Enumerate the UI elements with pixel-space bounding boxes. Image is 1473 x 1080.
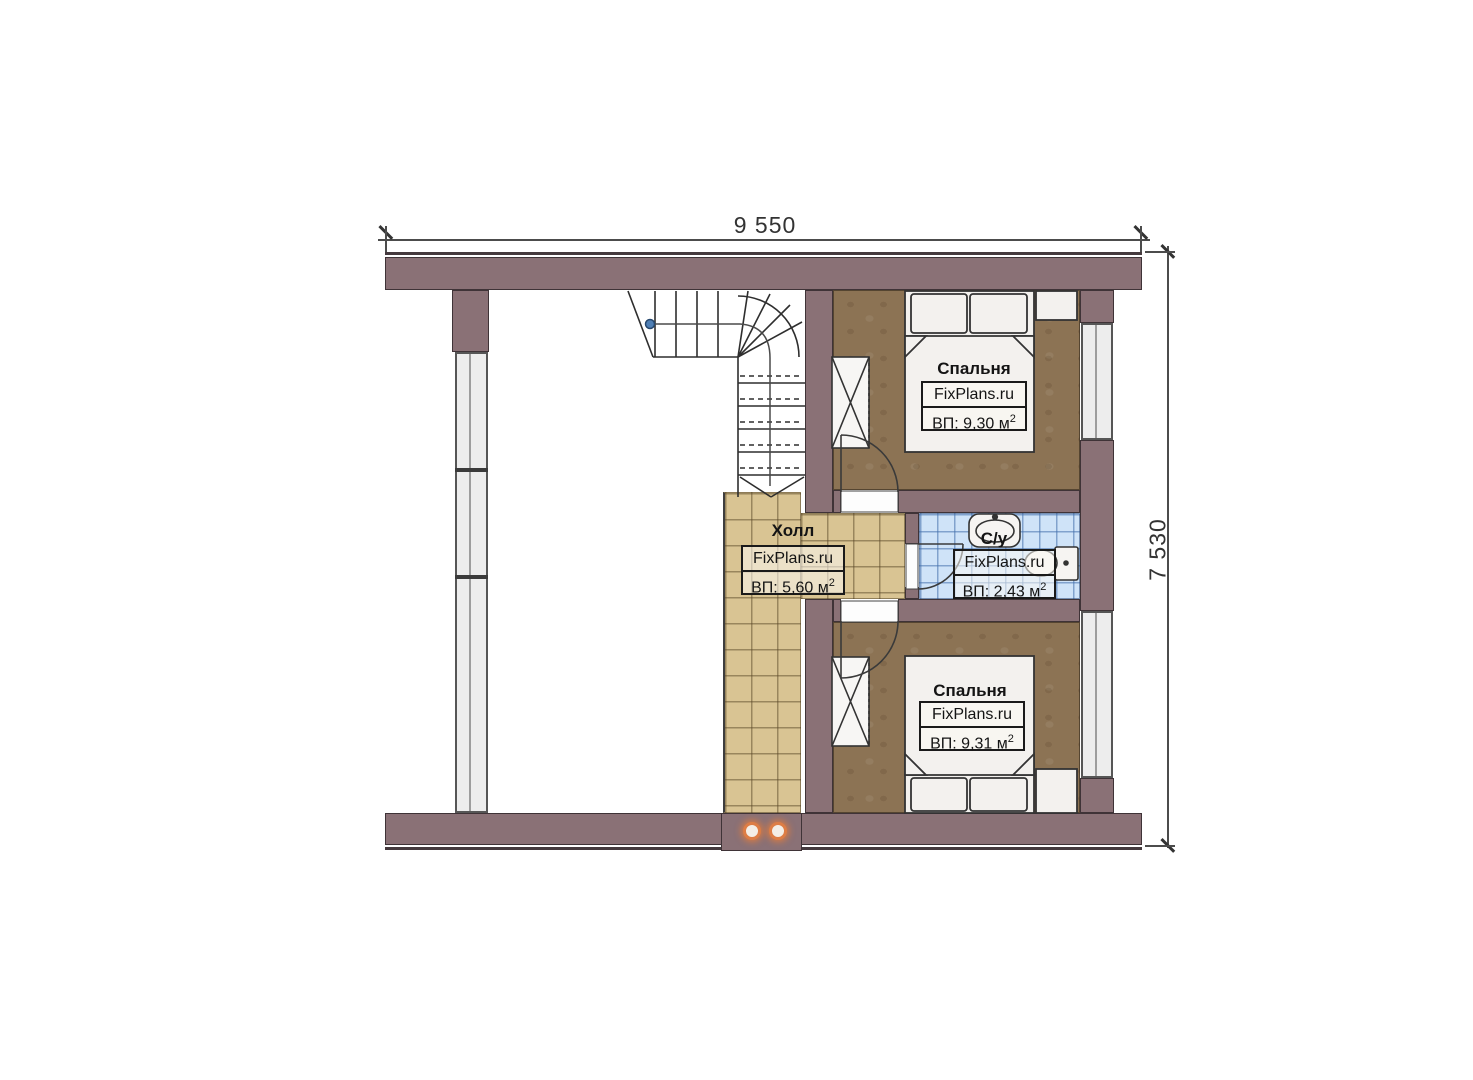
bedroom-lower-label-box: FixPlans.ru ВП: 9,31 м2 [919, 701, 1025, 751]
window-right-upper [1081, 323, 1113, 440]
wall-pier-right-top [1080, 290, 1114, 323]
light-dot-icon [743, 822, 761, 840]
dimension-right-ext-bottom [1145, 845, 1175, 847]
walk-line-start-dot [646, 320, 655, 329]
wall-bathroom-west-a [905, 513, 919, 544]
wall-bottom-porch [721, 813, 802, 851]
window-left [455, 352, 488, 813]
area-value: ВП: 9,31 м2 [921, 726, 1023, 749]
dimension-top-ext-left [385, 226, 387, 252]
wall-stairwell [805, 290, 833, 513]
wall-bedroom-upper-south-b [898, 490, 1080, 513]
dimension-right-line [1167, 246, 1169, 848]
dimension-top-ext-right [1140, 226, 1142, 252]
wall-pier-right-middle [1080, 440, 1114, 611]
window-right-lower [1081, 611, 1113, 778]
wall-pier-right-bottom [1080, 778, 1114, 813]
bathroom-title: С/у [966, 529, 1022, 549]
window-left-mullion [455, 575, 488, 579]
wall-bedroom-lower-north-b [898, 599, 1080, 622]
bathroom-label-box: FixPlans.ru ВП: 2,43 м2 [953, 549, 1056, 599]
area-value: ВП: 9,30 м2 [923, 406, 1025, 429]
roof-edge-top [385, 252, 1142, 255]
floor-plan-canvas: 9 550 7 530 [0, 0, 1473, 1080]
wall-bedroom-lower-north-a [833, 599, 841, 622]
dimension-right-ext-top [1145, 251, 1175, 253]
stair-walk-line [646, 320, 771, 487]
bedroom-upper-title: Спальня [899, 359, 1049, 379]
hall-label-box: FixPlans.ru ВП: 5,60 м2 [741, 545, 845, 595]
wall-top [385, 257, 1142, 290]
bedroom-upper-label-box: FixPlans.ru ВП: 9,30 м2 [921, 381, 1027, 431]
dimension-top-label: 9 550 [700, 212, 830, 239]
watermark: FixPlans.ru [921, 703, 1023, 726]
wall-pier-left [452, 290, 489, 352]
window-left-mullion [455, 468, 488, 472]
dimension-top-line [378, 239, 1150, 241]
wall-bathroom-west-b [905, 587, 919, 599]
hall-title: Холл [743, 521, 843, 541]
wall-hall-bedroom-lower [805, 599, 833, 813]
watermark: FixPlans.ru [955, 551, 1054, 574]
light-dot-icon [769, 822, 787, 840]
bedroom-lower-title: Спальня [895, 681, 1045, 701]
area-value: ВП: 5,60 м2 [743, 570, 843, 593]
area-value: ВП: 2,43 м2 [955, 574, 1054, 597]
wall-bedroom-upper-south-a [833, 490, 841, 513]
watermark: FixPlans.ru [923, 383, 1025, 406]
watermark: FixPlans.ru [743, 547, 843, 570]
staircase [628, 291, 805, 497]
